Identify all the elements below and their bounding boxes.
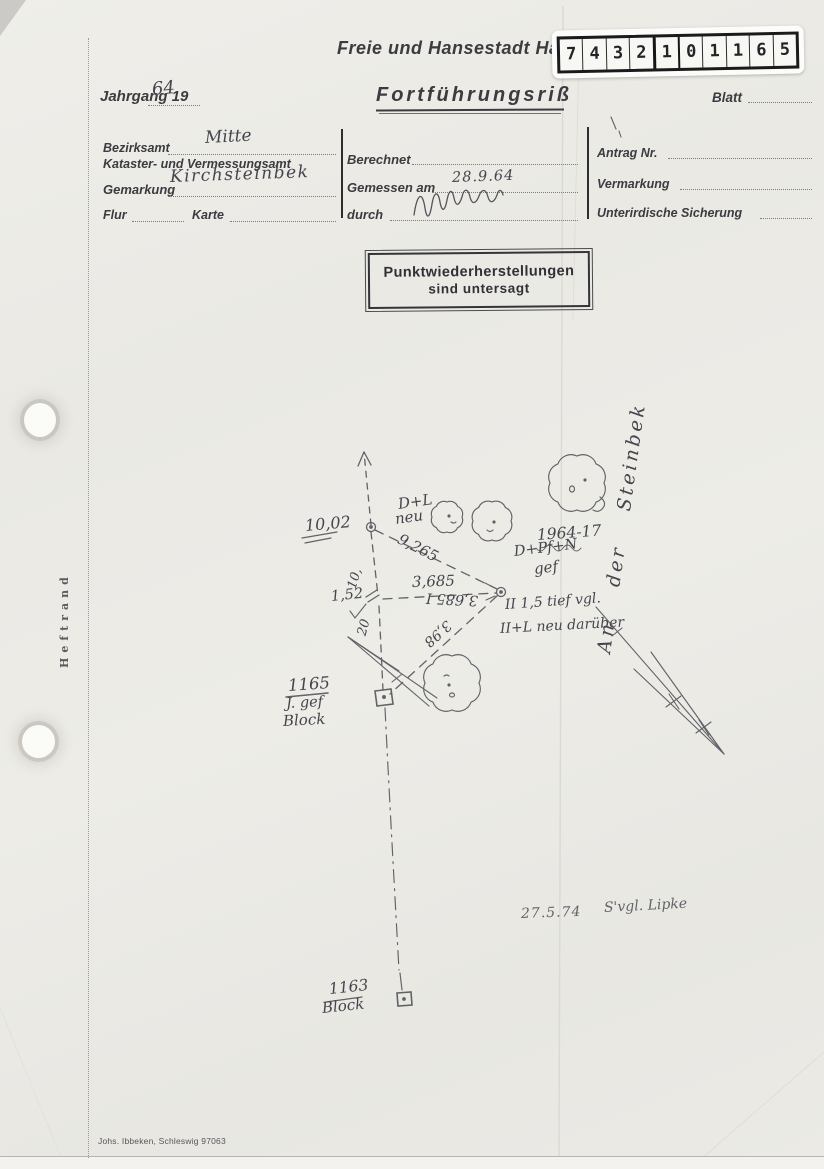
- printer-imprint: Johs. Ibbeken, Schleswig 97063: [98, 1136, 226, 1146]
- annotation-dist-10-02: 10,02: [304, 512, 351, 535]
- point-1163-dot: [403, 998, 405, 1000]
- boundary-dash-dot-line: [385, 708, 399, 970]
- annotation-point-1165-id: 1165: [287, 673, 330, 695]
- annotation-revision-date: 27.5.74: [521, 904, 582, 922]
- annotation-dist-3-685-reverse: 3,685 I: [426, 589, 479, 608]
- line-b-to-1165: [390, 596, 497, 694]
- point-1165-dot: [383, 696, 386, 699]
- line-junction-to-1165: [379, 606, 383, 690]
- annotation-point-b-type2: gef: [533, 557, 559, 578]
- point-b-sight-rays: [485, 583, 495, 600]
- point-a-dot: [370, 526, 372, 528]
- annotation-dist-3-685: 3,685: [412, 572, 456, 591]
- junction-double-tick: [366, 590, 379, 602]
- antrag-handwritten-mark: [611, 117, 621, 137]
- scanned-survey-document: Heftrand Freie und Hansestadt Ha 7 4 3 2…: [0, 0, 824, 1169]
- line-a-to-junction: [371, 532, 378, 596]
- surveyor-signature: [414, 190, 503, 216]
- tree-cloud-near-1165: [424, 655, 481, 712]
- tree-cloud-large: [549, 455, 606, 512]
- annotation-point-1165-type: Block: [283, 710, 326, 730]
- boundary-line-end: [400, 973, 402, 990]
- tree-cloud-small: [431, 501, 462, 532]
- point-b-dot: [500, 591, 502, 593]
- tree-cloud-medium: [472, 501, 512, 541]
- offset-checkmark: [350, 604, 366, 618]
